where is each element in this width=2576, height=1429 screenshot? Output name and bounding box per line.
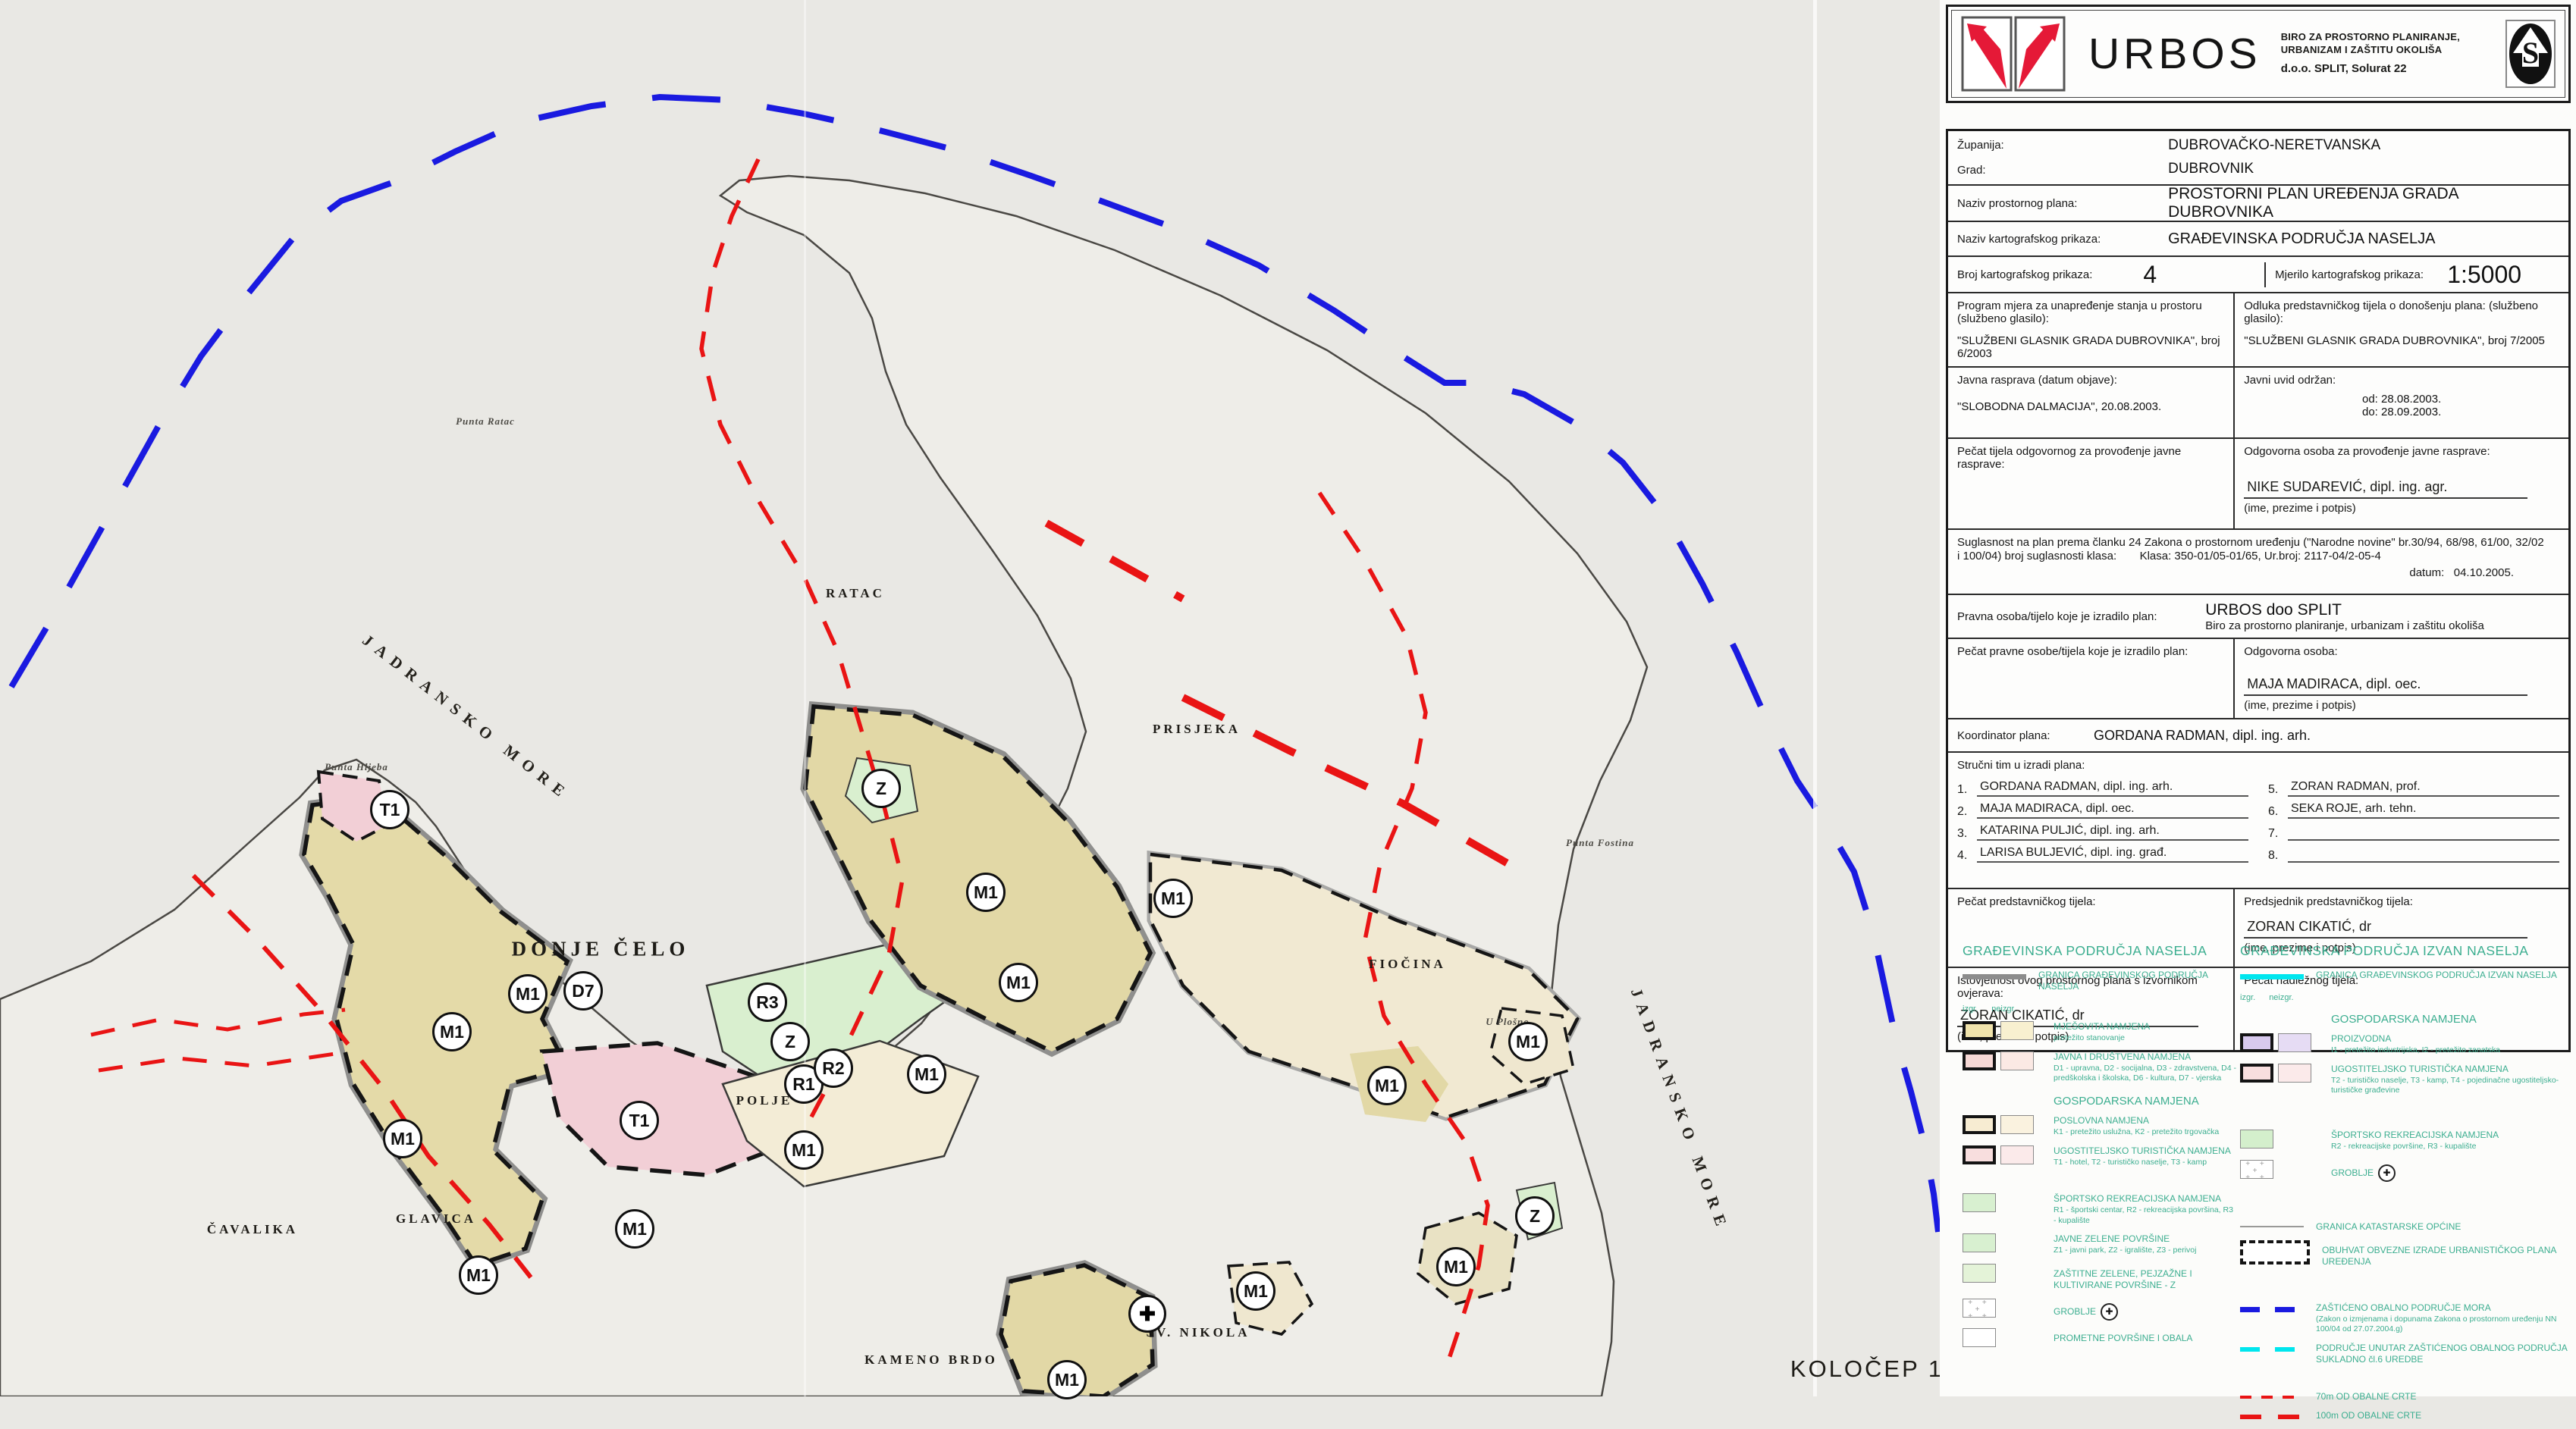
scan-fold-line [1813,0,1817,1396]
tim-member [2288,846,2559,863]
mjesovita-neizgr-swatch [2000,1021,2034,1040]
izgr-label: izgr. [1963,1004,1978,1014]
title-block-panel: URBOS BIRO ZA PROSTORNO PLANIRANJE, URBA… [1940,0,2576,1396]
broj-label: Broj kartografskog prikaza: [1948,262,2134,287]
tim-list-right: 5.ZORAN RADMAN, prof. 6.SEKA ROJE, arh. … [2268,775,2559,868]
javna-neizgr-swatch [2000,1051,2034,1070]
legend-item-sub: pretežito stanovanje [2054,1033,2150,1044]
cemetery-cross-icon: ✚ [2378,1164,2396,1182]
zelene-swatch [1963,1233,1996,1252]
legend-item-title: PROMETNE POVRŠINE I OBALA [2054,1333,2192,1344]
legend-item-title: JAVNA I DRUŠTVENA NAMJENA [2054,1051,2237,1063]
katastarska-line-swatch [2240,1226,2304,1227]
tim-member [2288,824,2559,841]
gospodarska-header: GOSPODARSKA NAMJENA [2054,1095,2237,1108]
legend-line-sub: (Zakon o izmjenama i dopunama Zakona o p… [2316,1315,2571,1335]
legend-item-sub: R1 - športski centar, R2 - rekreacijska … [2054,1205,2237,1226]
zop-blue-dash-swatch [2240,1307,2304,1312]
odg-osoba-name: NIKE SUDAREVIĆ, dipl. ing. agr. [2244,478,2527,499]
grad-value: DUBROVNIK [2168,161,2559,177]
legend-item-title: POSLOVNA NAMJENA [2054,1115,2219,1127]
legend-item-title: ŠPORTSKO REKREACIJSKA NAMJENA [2054,1193,2237,1205]
klasa-value: Klasa: 350-01/05-01/65, Ur.broj: 2117-04… [2140,550,2381,563]
boundary-naselja-label: GRANICA GRAĐEVINSKOG PODRUČJA NASELJA [2038,970,2237,992]
legend-izvan-naselja: GRAĐEVINSKA PODRUČJA IZVAN NASELJA GRANI… [2240,943,2571,1429]
pecat-pravne-label: Pečat pravne osobe/tijela koje je izradi… [1948,639,2233,718]
zupanija-value: DUBROVAČKO-NERETVANSKA [2168,137,2559,154]
proizvodna-izgr-swatch [2240,1033,2273,1052]
odg-osoba-label: Odgovorna osoba za provođenje javne rasp… [2244,445,2559,458]
legend-item-title: PROIZVODNA [2331,1033,2500,1045]
pravna-value-1: URBOS doo SPLIT [2205,601,2484,619]
poslovna-neizgr-swatch [2000,1115,2034,1134]
tagline-line1: BIRO ZA PROSTORNO PLANIRANJE, [2281,31,2460,42]
legend-naselja: GRAĐEVINSKA PODRUČJA NASELJA GRANICA GRA… [1963,943,2237,1355]
scan-fold-line [804,0,806,1396]
uvid-do: do: 28.09.2003. [2244,406,2559,418]
obuhvat-dashed-box-swatch [2240,1240,2310,1264]
naziv-prikaza-label: Naziv kartografskog prikaza: [1948,227,2159,252]
legend-naselja-title: GRAĐEVINSKA PODRUČJA NASELJA [1963,943,2237,959]
tim-label: Stručni tim u izradi plana: [1957,759,2559,772]
grad-label: Grad: [1957,164,2150,177]
naziv-plana-label: Naziv prostornog plana: [1948,191,2159,216]
legend-item-title: GROBLJE [2331,1167,2374,1178]
boundary-izvan-label: GRANICA GRAĐEVINSKOG PODRUČJA IZVAN NASE… [2316,970,2557,981]
koordinator-label: Koordinator plana: [1948,723,2085,748]
prometne-swatch [1963,1328,1996,1347]
tim-list-left: 1.GORDANA RADMAN, dipl. ing. arh. 2.MAJA… [1957,775,2248,868]
odluka-label: Odluka predstavničkog tijela o donošenju… [2244,299,2559,325]
legend-item-title: ZAŠTITNE ZELENE, PEJZAŽNE I KULTIVIRANE … [2054,1268,2237,1291]
odluka-value: "SLUŽBENI GLASNIK GRADA DUBROVNIKA", bro… [2244,334,2559,347]
legend-item-sub: R2 - rekreacijske površine, R3 - kupališ… [2331,1142,2499,1152]
line-100m-swatch [2240,1415,2304,1419]
broj-value: 4 [2134,255,2264,295]
legend-line-label: 100m OD OBALNE CRTE [2316,1410,2421,1421]
legend-item-title: UGOSTITELJSKO TURISTIČKA NAMJENA [2331,1064,2571,1075]
legend-line-label: 70m OD OBALNE CRTE [2316,1391,2416,1402]
svg-text:S: S [2522,36,2539,70]
s-emblem-icon: S [2505,20,2556,88]
odgovorna-name: MAJA MADIRACA, dipl. oec. [2244,675,2527,696]
legend-item-sub: K1 - pretežito uslužna, K2 - pretežito t… [2054,1127,2219,1138]
potpis-note: (ime, prezime i potpis) [2244,502,2559,515]
tim-member: GORDANA RADMAN, dipl. ing. arh. [1977,780,2248,797]
legend-item-title: GROBLJE [2054,1306,2096,1317]
pravna-value-2: Biro za prostorno planiranje, urbanizam … [2205,619,2484,632]
groblje-izvan-swatch: + + ++ + + [2240,1160,2273,1179]
address: d.o.o. SPLIT, Solurat 22 [2281,62,2460,77]
mjerilo-label: Mjerilo kartografskog prikaza: [2264,262,2438,287]
suglasnost-text-1: Suglasnost na plan prema članku 24 Zakon… [1957,536,2544,549]
turisticka-izgr-swatch [1963,1145,1996,1164]
legend-item-sub: I1 - pretežito industrijska, I2 - pretež… [2331,1045,2500,1056]
legend-item-sub: Z1 - javni park, Z2 - igralište, Z3 - pe… [2054,1246,2196,1256]
odgovorna-label: Odgovorna osoba: [2244,645,2559,658]
legend-item-title: JAVNE ZELENE POVRŠINE [2054,1233,2196,1245]
javna-label: Javna rasprava (datum objave): [1957,374,2224,387]
naziv-plana-value: PROSTORNI PLAN UREĐENJA GRADA DUBROVNIKA [2159,179,2568,227]
boundary-naselja-swatch [1963,974,2026,979]
legend-line-label: PODRUČJE UNUTAR ZAŠTIĆENOG OBALNOG PODRU… [2316,1343,2571,1365]
suglasnost-text-2: i 100/04) broj suglasnosti klasa: [1957,550,2116,563]
uvid-label: Javni uvid održan: [2244,374,2559,387]
gospodarska-header: GOSPODARSKA NAMJENA [2331,1013,2571,1026]
sport-swatch [1963,1193,1996,1212]
neizgr-label: neizgr. [1991,1004,2016,1014]
boundary-izvan-swatch [2240,974,2304,979]
tim-member: SEKA ROJE, arh. tehn. [2288,802,2559,819]
groblje-swatch: + + ++ + + [1963,1299,1996,1318]
pecat-tijela-label: Pečat tijela odgovornog za provođenje ja… [1948,439,2233,528]
program-label: Program mjera za unapređenje stanja u pr… [1957,299,2224,325]
uvid-od: od: 28.08.2003. [2244,393,2559,406]
javna-value: "SLOBODNA DALMACIJA", 20.08.2003. [1957,400,2224,413]
neizgr-label: neizgr. [2269,993,2293,1002]
legend-item-title: ŠPORTSKO REKREACIJSKA NAMJENA [2331,1130,2499,1141]
proizvodna-neizgr-swatch [2278,1033,2311,1052]
potpis-note: (ime, prezime i potpis) [2244,699,2559,712]
datum-label: datum: [2409,566,2444,579]
tim-member: KATARINA PULJIĆ, dipl. ing. arh. [1977,824,2248,841]
cemetery-cross-icon: ✚ [2101,1303,2118,1321]
legend-item-sub: D1 - upravna, D2 - socijalna, D3 - zdrav… [2054,1064,2237,1084]
legend-line-label: ZAŠTIĆENO OBALNO PODRUČJE MORA [2316,1302,2571,1314]
naziv-prikaza-value: GRAĐEVINSKA PODRUČJA NASELJA [2159,224,2568,254]
tim-member: ZORAN RADMAN, prof. [2288,780,2559,797]
turisticka-izvan-izgr-swatch [2240,1064,2273,1083]
legend-item-sub: T2 - turističko naselje, T3 - kamp, T4 -… [2331,1076,2571,1096]
urbos-header: URBOS BIRO ZA PROSTORNO PLANIRANJE, URBA… [1946,5,2571,103]
mjerilo-value: 1:5000 [2438,255,2568,295]
legend-item-sub: T1 - hotel, T2 - turističko naselje, T3 … [2054,1158,2231,1168]
zupanija-label: Županija: [1957,139,2150,152]
turisticka-izvan-neizgr-swatch [2278,1064,2311,1083]
javna-izgr-swatch [1963,1051,1996,1070]
legend-item-title: UGOSTITELJSKO TURISTIČKA NAMJENA [2054,1145,2231,1157]
poslovna-izgr-swatch [1963,1115,1996,1134]
zastitne-swatch [1963,1264,1996,1283]
legend-item-title: MJEŠOVITA NAMJENA [2054,1021,2150,1033]
tim-member: MAJA MADIRACA, dipl. oec. [1977,802,2248,819]
map-canvas [0,0,1940,1396]
double-arrow-logo-icon [1961,16,2067,92]
izgr-label: izgr. [2240,993,2255,1002]
program-value: "SLUŽBENI GLASNIK GRADA DUBROVNIKA", bro… [1957,334,2224,360]
legend-izvan-title: GRAĐEVINSKA PODRUČJA IZVAN NASELJA [2240,943,2571,959]
planning-map: KOLOČEP 1 JADRANSKO MOREJADRANSKO MOREPu… [0,0,1940,1396]
legend-line-label: GRANICA KATASTARSKE OPĆINE [2316,1221,2461,1233]
datum-value: 04.10.2005. [2454,566,2514,579]
turisticka-neizgr-swatch [2000,1145,2034,1164]
tagline-line2: URBANIZAM I ZAŠTITU OKOLIŠA [2281,44,2443,55]
tim-member: LARISA BULJEVIĆ, dipl. ing. građ. [1977,846,2248,863]
predsjednik-name: ZORAN CIKATIĆ, dr [2244,917,2527,939]
koordinator-value: GORDANA RADMAN, dipl. ing. arh. [2085,722,2320,750]
line-70m-swatch [2240,1396,2304,1399]
legend-line-label: OBUHVAT OBVEZNE IZRADE URBANISTIČKOG PLA… [2322,1245,2571,1268]
sport-izvan-swatch [2240,1130,2273,1149]
pravna-label: Pravna osoba/tijelo koje je izradilo pla… [1948,604,2196,629]
zop-cyan-dash-swatch [2240,1347,2304,1352]
plan-title-table: Županija: Grad: DUBROVAČKO-NERETVANSKA D… [1946,129,2571,1052]
predsjednik-label: Predsjednik predstavničkog tijela: [2244,895,2559,908]
mjesovita-izgr-swatch [1963,1021,1996,1040]
logo-wordmark: URBOS [2088,29,2261,79]
